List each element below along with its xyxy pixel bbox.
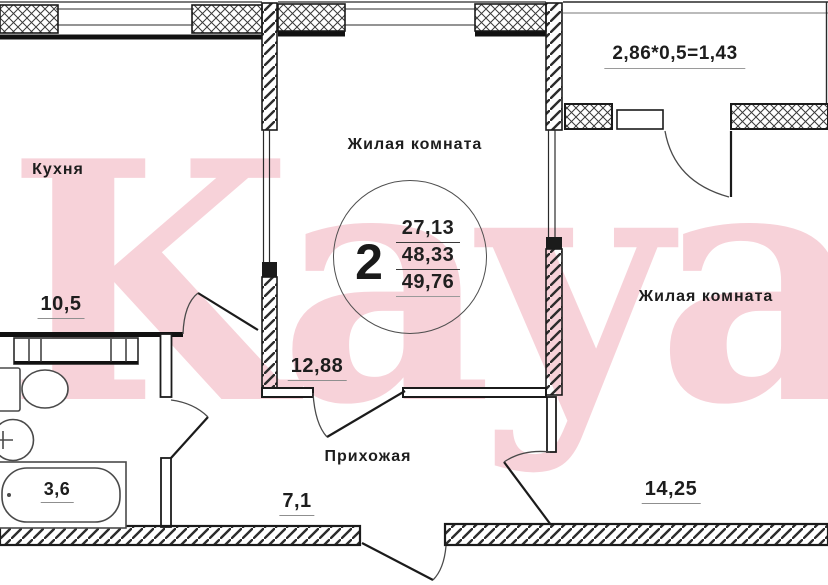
room-area-living2: 14,25 bbox=[642, 478, 701, 504]
door-living1 bbox=[313, 391, 405, 437]
door-kitchen-hall bbox=[183, 293, 258, 334]
room-label-living1: Жилая комната bbox=[348, 136, 483, 154]
summary-living-area: 27,13 bbox=[396, 216, 460, 243]
room-label-hallway: Прихожая bbox=[325, 448, 412, 466]
door-balcony bbox=[665, 131, 731, 197]
wall-bath-right bbox=[161, 334, 172, 527]
summary-room-count: 2 bbox=[355, 233, 383, 291]
wall-hall-right-divider bbox=[547, 397, 556, 452]
wall-kitchen-bottom bbox=[0, 335, 183, 365]
room-area-bathroom: 3,6 bbox=[41, 479, 74, 503]
door-living2 bbox=[504, 451, 551, 525]
floor-plan-page: Kayan bbox=[0, 0, 828, 585]
room-area-kitchen: 10,5 bbox=[38, 293, 85, 319]
room-area-living1: 12,88 bbox=[288, 355, 347, 381]
summary-area-stack: 27,13 48,33 49,76 bbox=[396, 216, 460, 297]
balcony-area-formula: 2,86*0,5=1,43 bbox=[604, 43, 745, 69]
wall-top-living bbox=[278, 2, 546, 34]
toilet-fixture bbox=[0, 368, 68, 411]
wall-top-kitchen bbox=[0, 2, 262, 37]
door-kitchen bbox=[171, 400, 208, 458]
summary-total-area: 49,76 bbox=[396, 270, 460, 297]
summary-area: 48,33 bbox=[396, 243, 460, 270]
sink-fixture bbox=[0, 420, 34, 461]
wall-living-right bbox=[546, 3, 562, 395]
room-label-kitchen: Кухня bbox=[32, 161, 84, 179]
door-entry bbox=[362, 543, 446, 580]
wall-balcony-bottom bbox=[565, 104, 828, 129]
room-area-hallway: 7,1 bbox=[279, 490, 314, 516]
wall-living-left bbox=[262, 3, 277, 395]
room-label-living2: Жилая комната bbox=[639, 288, 774, 306]
